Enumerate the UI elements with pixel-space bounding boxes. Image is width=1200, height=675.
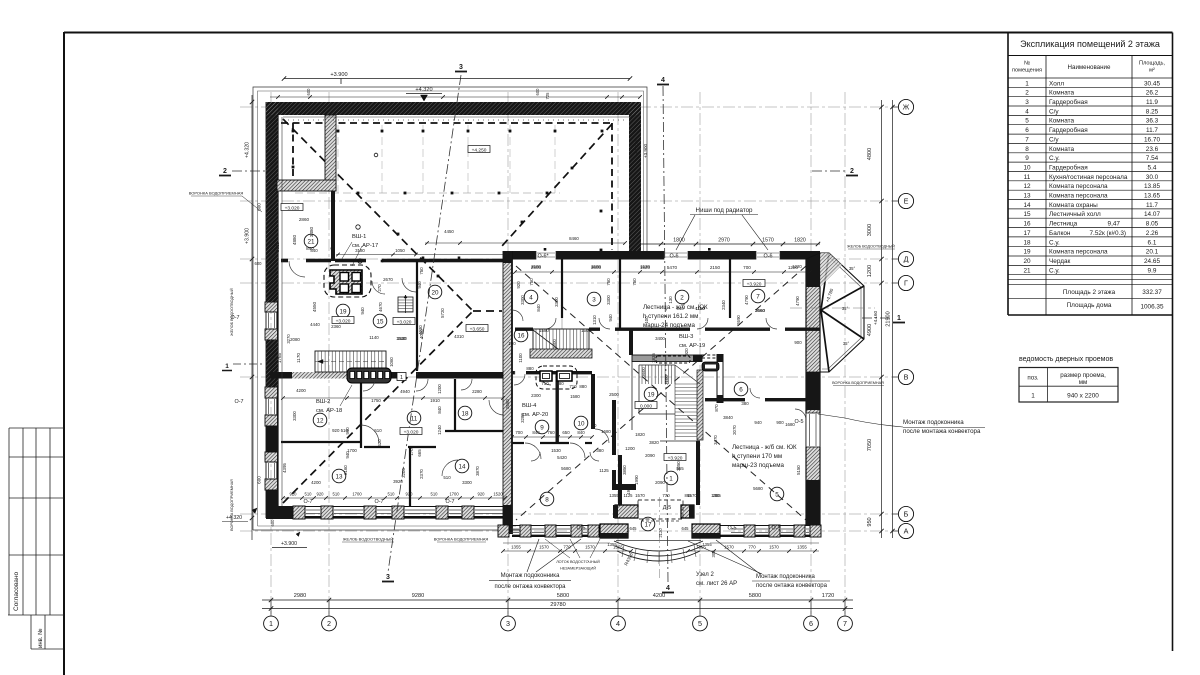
svg-text:7: 7 [1025, 136, 1029, 143]
svg-text:+4.160: +4.160 [873, 310, 878, 325]
svg-text:1220: 1220 [792, 264, 802, 269]
svg-text:35°: 35° [843, 341, 850, 346]
svg-text:+3.900: +3.900 [281, 541, 297, 547]
svg-text:645: 645 [682, 526, 690, 531]
svg-text:С.у.: С.у. [1049, 267, 1060, 274]
svg-text:7: 7 [843, 619, 847, 628]
svg-text:4790: 4790 [744, 295, 749, 305]
svg-text:4200: 4200 [296, 388, 306, 393]
svg-text:ВШ-3: ВШ-3 [679, 334, 693, 340]
svg-text:3: 3 [506, 619, 510, 628]
svg-text:170: 170 [409, 448, 414, 456]
svg-text:30.45: 30.45 [1144, 80, 1160, 87]
svg-text:3470: 3470 [713, 435, 718, 445]
svg-text:1006.35: 1006.35 [1140, 304, 1164, 311]
svg-text:см. АР-18: см. АР-18 [316, 408, 342, 414]
svg-text:помещения: помещения [1012, 68, 1042, 74]
svg-text:О-5: О-5 [728, 526, 737, 532]
svg-text:21900: 21900 [886, 311, 892, 327]
svg-text:Гардеробная: Гардеробная [1049, 164, 1088, 172]
svg-text:920: 920 [478, 492, 486, 497]
svg-text:13: 13 [335, 473, 343, 480]
svg-text:8460: 8460 [569, 236, 579, 241]
svg-text:1050: 1050 [395, 248, 405, 253]
svg-text:770: 770 [662, 493, 670, 498]
svg-text:5420: 5420 [557, 455, 567, 460]
svg-text:3180: 3180 [355, 248, 365, 253]
svg-text:ЖЕЛОБ ВОДООТВОДНЫЙ: ЖЕЛОБ ВОДООТВОДНЫЙ [343, 537, 393, 542]
svg-text:3920: 3920 [393, 479, 403, 484]
svg-text:5: 5 [775, 491, 779, 498]
svg-text:20: 20 [1023, 258, 1031, 265]
svg-text:725: 725 [545, 92, 550, 100]
svg-text:1750: 1750 [371, 398, 381, 403]
svg-text:+4.320: +4.320 [634, 139, 639, 154]
svg-text:Ниши под радиатор: Ниши под радиатор [696, 207, 754, 214]
svg-text:300: 300 [711, 550, 716, 558]
svg-text:20.1: 20.1 [1146, 249, 1159, 256]
svg-text:ВОРОНКА ВОДОПРИЕМНАЯ: ВОРОНКА ВОДОПРИЕМНАЯ [189, 191, 244, 196]
svg-text:5470: 5470 [667, 265, 678, 270]
svg-text:940: 940 [754, 420, 762, 425]
svg-text:1170: 1170 [296, 353, 301, 363]
svg-text:700: 700 [515, 430, 523, 435]
svg-text:Б: Б [904, 510, 909, 519]
svg-text:О-5: О-5 [577, 526, 586, 532]
svg-text:ВОРОНКА ВОДОПРИЕМНАЯ: ВОРОНКА ВОДОПРИЕМНАЯ [230, 479, 234, 531]
svg-text:Е: Е [904, 197, 909, 206]
svg-text:Холл: Холл [1049, 80, 1064, 87]
svg-text:23.6: 23.6 [1146, 146, 1159, 153]
svg-text:2980: 2980 [294, 593, 306, 599]
svg-text:см. АР-20: см. АР-20 [522, 412, 548, 418]
svg-text:2370: 2370 [419, 469, 424, 479]
svg-text:2970: 2970 [718, 238, 730, 244]
svg-text:1240: 1240 [437, 425, 442, 435]
svg-text:270: 270 [377, 284, 382, 292]
svg-text:1: 1 [269, 619, 273, 628]
svg-text:4880: 4880 [292, 234, 297, 245]
svg-text:940: 940 [676, 306, 684, 311]
svg-text:1680: 1680 [601, 429, 611, 434]
svg-text:26.2: 26.2 [1146, 90, 1159, 97]
svg-text:1570: 1570 [762, 238, 774, 244]
svg-text:2070: 2070 [732, 425, 737, 435]
svg-text:Комната персонала: Комната персонала [1049, 193, 1108, 200]
svg-text:4: 4 [616, 619, 620, 628]
svg-text:950: 950 [867, 517, 873, 526]
svg-text:Комната: Комната [1049, 146, 1074, 153]
svg-text:12: 12 [1023, 183, 1031, 190]
svg-text:Согласовано: Согласовано [13, 572, 20, 611]
svg-text:17: 17 [1023, 230, 1031, 237]
svg-text:510: 510 [374, 428, 382, 433]
svg-text:инв. №: инв. № [37, 628, 44, 648]
svg-text:1570: 1570 [635, 493, 645, 498]
svg-text:19: 19 [1023, 249, 1031, 256]
svg-text:510: 510 [305, 492, 313, 497]
svg-text:марш-23 подъема: марш-23 подъема [732, 462, 784, 469]
svg-text:840: 840 [577, 430, 585, 435]
svg-text:5680: 5680 [561, 466, 571, 471]
svg-text:9: 9 [1025, 155, 1029, 162]
svg-text:750: 750 [606, 278, 611, 286]
svg-text:2340: 2340 [721, 300, 726, 310]
svg-text:2690: 2690 [736, 315, 741, 325]
svg-text:940: 940 [417, 281, 422, 289]
svg-text:3400: 3400 [655, 336, 665, 341]
svg-text:20: 20 [431, 289, 439, 296]
svg-text:1530: 1530 [396, 336, 406, 341]
svg-text:+3.020: +3.020 [404, 430, 419, 436]
svg-text:В: В [904, 373, 909, 382]
svg-text:С.у.: С.у. [1049, 155, 1060, 162]
svg-text:3: 3 [459, 64, 463, 71]
svg-text:665: 665 [417, 449, 422, 457]
svg-text:7.54: 7.54 [1146, 155, 1159, 162]
svg-text:332.37: 332.37 [1142, 289, 1162, 296]
svg-text:+3.900: +3.900 [330, 72, 347, 78]
svg-text:1: 1 [897, 315, 901, 322]
svg-text:4: 4 [1025, 108, 1029, 115]
svg-text:600: 600 [270, 519, 275, 527]
svg-text:Гардеробная: Гардеробная [1049, 98, 1088, 106]
svg-text:3205: 3205 [401, 468, 406, 478]
svg-text:Комната: Комната [1049, 118, 1074, 125]
svg-text:Д: Д [904, 255, 909, 264]
svg-text:2150: 2150 [710, 265, 721, 270]
svg-text:О-7: О-7 [375, 499, 384, 505]
svg-text:380: 380 [741, 401, 749, 406]
svg-text:1990: 1990 [634, 475, 639, 485]
svg-text:1700: 1700 [347, 448, 357, 453]
svg-text:3300: 3300 [462, 480, 472, 485]
svg-text:С/у: С/у [1049, 108, 1059, 115]
svg-text:5.4: 5.4 [1148, 165, 1157, 172]
svg-text:2090: 2090 [655, 480, 665, 485]
svg-text:600: 600 [306, 88, 311, 96]
svg-text:Площадь 2 этажа: Площадь 2 этажа [1063, 289, 1116, 296]
svg-text:Экспликация помещений 2 этаж: Экспликация помещений 2 этажа [1020, 39, 1160, 49]
svg-text:710: 710 [569, 384, 577, 389]
svg-text:4: 4 [661, 77, 665, 84]
svg-text:3: 3 [1025, 99, 1029, 106]
svg-text:8.05: 8.05 [1146, 221, 1159, 228]
svg-text:+3.920: +3.920 [668, 456, 683, 462]
svg-text:1140: 1140 [369, 335, 379, 340]
svg-text:940: 940 [360, 307, 365, 315]
svg-text:1820: 1820 [794, 238, 806, 244]
svg-text:100: 100 [508, 341, 516, 346]
svg-text:+4.320: +4.320 [226, 515, 242, 521]
svg-text:3600: 3600 [591, 264, 601, 269]
svg-text:мм: мм [1079, 379, 1088, 386]
svg-text:4670: 4670 [378, 302, 383, 312]
svg-text:1: 1 [1031, 393, 1035, 400]
svg-text:1530: 1530 [551, 448, 561, 453]
svg-text:16: 16 [517, 332, 525, 339]
svg-text:Лестница: Лестница [1049, 221, 1078, 228]
svg-text:после онтажа конвектора: после онтажа конвектора [495, 584, 567, 590]
svg-text:2: 2 [327, 619, 331, 628]
svg-text:3600: 3600 [641, 367, 646, 377]
svg-text:510: 510 [443, 475, 451, 480]
svg-text:940: 940 [608, 314, 613, 322]
svg-text:3660: 3660 [755, 308, 765, 313]
svg-text:11.7: 11.7 [1146, 127, 1158, 134]
svg-text:5615: 5615 [275, 241, 280, 252]
svg-text:645: 645 [630, 526, 638, 531]
svg-text:17: 17 [644, 521, 652, 528]
svg-text:h ступени 170 мм: h ступени 170 мм [732, 453, 782, 460]
svg-text:Лестница - ж/б см. ЮК: Лестница - ж/б см. ЮК [732, 444, 797, 451]
svg-text:3850: 3850 [622, 465, 627, 475]
svg-text:3840: 3840 [723, 415, 733, 420]
svg-text:+3.020: +3.020 [285, 206, 300, 212]
svg-text:размер проема,: размер проема, [1060, 372, 1106, 379]
svg-text:Площадь,: Площадь, [1139, 61, 1165, 67]
svg-text:19: 19 [339, 308, 347, 315]
svg-text:600: 600 [255, 261, 263, 266]
svg-text:ведомость дверных проемов: ведомость дверных проемов [1019, 356, 1113, 363]
svg-text:1580: 1580 [539, 328, 549, 333]
svg-text:770: 770 [748, 545, 756, 550]
svg-text:2090: 2090 [645, 453, 655, 458]
svg-text:940 x 2200: 940 x 2200 [1067, 393, 1099, 400]
svg-text:750: 750 [529, 278, 534, 286]
svg-text:510: 510 [333, 492, 341, 497]
svg-text:8: 8 [1025, 146, 1029, 153]
svg-text:см. АР-19: см. АР-19 [679, 343, 705, 349]
svg-text:510: 510 [431, 492, 439, 497]
svg-text:15: 15 [1023, 211, 1031, 218]
svg-text:2: 2 [223, 168, 227, 175]
svg-text:21: 21 [1023, 267, 1031, 274]
svg-text:4: 4 [529, 294, 533, 301]
svg-text:2350: 2350 [696, 448, 701, 458]
svg-text:+3.020: +3.020 [397, 320, 412, 326]
svg-text:2: 2 [1025, 90, 1029, 97]
svg-text:О-7: О-7 [446, 499, 455, 505]
svg-text:9.9: 9.9 [1148, 267, 1157, 274]
svg-text:4395: 4395 [282, 463, 287, 473]
svg-text:ВШ-1: ВШ-1 [352, 234, 366, 240]
svg-text:1300: 1300 [552, 339, 557, 349]
svg-text:510: 510 [388, 492, 396, 497]
svg-text:9,47: 9,47 [1108, 221, 1121, 228]
svg-text:13.65: 13.65 [1144, 193, 1160, 200]
svg-text:ВОРОНКА ВОДОПРИЕМНАЯ: ВОРОНКА ВОДОПРИЕМНАЯ [832, 381, 884, 385]
svg-text:3300: 3300 [554, 297, 559, 307]
svg-text:О-7: О-7 [304, 499, 313, 505]
svg-text:3300: 3300 [292, 411, 297, 421]
svg-text:13.85: 13.85 [1144, 183, 1160, 190]
svg-text:1125: 1125 [599, 468, 609, 473]
svg-text:3: 3 [386, 574, 390, 581]
svg-text:880: 880 [579, 384, 587, 389]
svg-text:90: 90 [592, 423, 597, 428]
svg-text:1680: 1680 [785, 422, 795, 427]
svg-text:2120: 2120 [658, 528, 663, 538]
svg-text:10: 10 [577, 420, 585, 427]
svg-text:поз.: поз. [1027, 375, 1039, 382]
svg-text:Кухня/гостиная персонала: Кухня/гостиная персонала [1049, 174, 1128, 181]
svg-text:865: 865 [685, 493, 693, 498]
svg-text:1: 1 [669, 475, 673, 482]
svg-text:марш-24 подъема: марш-24 подъема [643, 322, 695, 329]
svg-text:6: 6 [1025, 127, 1029, 134]
svg-text:260: 260 [713, 493, 721, 498]
svg-text:1570: 1570 [539, 545, 549, 550]
svg-text:Комната персонала: Комната персонала [1049, 183, 1108, 190]
svg-text:1835: 1835 [651, 353, 656, 363]
svg-text:Комната охраны: Комната охраны [1049, 202, 1098, 209]
svg-text:А: А [904, 527, 909, 536]
svg-text:920: 920 [684, 348, 689, 356]
svg-text:600: 600 [535, 88, 540, 96]
svg-text:+4.250: +4.250 [472, 148, 487, 154]
svg-text:700: 700 [743, 265, 751, 270]
svg-text:6.1: 6.1 [1148, 239, 1157, 246]
svg-text:24.65: 24.65 [1144, 258, 1160, 265]
svg-text:420: 420 [377, 439, 382, 447]
svg-text:2860: 2860 [299, 217, 310, 222]
svg-text:1820: 1820 [635, 432, 645, 437]
svg-text:4790: 4790 [795, 296, 800, 306]
svg-text:2080: 2080 [290, 337, 300, 342]
svg-text:3280: 3280 [520, 413, 525, 423]
svg-text:3820: 3820 [649, 440, 659, 445]
svg-text:1310: 1310 [592, 315, 597, 325]
svg-text:+3.900: +3.900 [245, 228, 251, 244]
svg-text:Монтаж подоконника: Монтаж подоконника [903, 419, 964, 426]
svg-text:16: 16 [1023, 221, 1031, 228]
svg-text:Площадь дома: Площадь дома [1067, 302, 1112, 309]
svg-text:600: 600 [257, 476, 262, 484]
svg-text:1: 1 [1025, 80, 1029, 87]
svg-text:1110: 1110 [695, 306, 705, 311]
svg-text:О-7: О-7 [235, 399, 244, 405]
svg-text:2280: 2280 [472, 389, 482, 394]
svg-text:36.3: 36.3 [1146, 118, 1159, 125]
svg-text:13: 13 [1023, 193, 1031, 200]
svg-text:Узел 2: Узел 2 [696, 572, 714, 578]
svg-text:1100: 1100 [518, 353, 523, 363]
svg-text:Г: Г [904, 279, 908, 288]
svg-text:1355: 1355 [702, 542, 712, 547]
svg-text:С/у: С/у [1049, 136, 1059, 143]
svg-text:12: 12 [316, 417, 324, 424]
svg-text:2500: 2500 [531, 264, 541, 269]
svg-text:710: 710 [541, 381, 549, 386]
svg-text:920: 920 [406, 492, 414, 497]
svg-text:21: 21 [307, 238, 315, 245]
svg-text:920: 920 [516, 281, 521, 289]
svg-text:О-7: О-7 [231, 315, 240, 321]
svg-text:4310: 4310 [454, 334, 464, 339]
svg-text:3300: 3300 [606, 295, 611, 305]
svg-text:840: 840 [532, 430, 540, 435]
svg-text:НЕЗАМЕРЗАЮЩИЙ: НЕЗАМЕРЗАЮЩИЙ [560, 567, 596, 571]
svg-text:4440: 4440 [310, 322, 320, 327]
svg-text:900: 900 [776, 420, 784, 425]
svg-text:8.25: 8.25 [1146, 108, 1159, 115]
svg-text:Д-5: Д-5 [663, 505, 671, 511]
svg-text:35°: 35° [849, 266, 856, 271]
svg-text:18: 18 [461, 410, 469, 417]
svg-text:Монтаж подоконника: Монтаж подоконника [501, 573, 560, 579]
svg-text:3: 3 [592, 296, 596, 303]
svg-text:4030: 4030 [418, 325, 423, 335]
svg-text:1200: 1200 [437, 384, 442, 394]
svg-text:3870: 3870 [475, 466, 480, 476]
svg-text:5680: 5680 [753, 486, 763, 491]
svg-text:14: 14 [1023, 202, 1031, 209]
svg-text:5720: 5720 [440, 308, 445, 318]
svg-text:+4.320: +4.320 [415, 87, 432, 93]
svg-text:760: 760 [547, 430, 555, 435]
svg-text:11.9: 11.9 [1146, 99, 1158, 106]
svg-text:Лестничный холл: Лестничный холл [1049, 210, 1101, 218]
svg-text:5800: 5800 [749, 593, 761, 599]
svg-text:+3.900: +3.900 [643, 143, 648, 158]
svg-text:840: 840 [536, 304, 541, 312]
svg-text:2050: 2050 [676, 461, 681, 471]
svg-text:Комната: Комната [1049, 90, 1074, 97]
svg-text:11: 11 [411, 415, 418, 422]
svg-text:8: 8 [545, 496, 549, 503]
svg-text:№: № [1024, 61, 1030, 67]
svg-text:2680: 2680 [505, 399, 510, 409]
svg-text:7: 7 [756, 293, 760, 300]
svg-text:4900: 4900 [867, 324, 873, 336]
svg-text:2100: 2100 [664, 375, 669, 385]
svg-text:2160: 2160 [343, 465, 348, 475]
svg-text:5150: 5150 [796, 465, 801, 475]
svg-text:Ж: Ж [903, 103, 910, 112]
svg-text:18: 18 [1023, 239, 1031, 246]
svg-text:Комната персонала: Комната персонала [1049, 249, 1108, 256]
svg-text:1700: 1700 [352, 492, 362, 497]
svg-text:О-6: О-6 [764, 254, 773, 260]
svg-text:2670: 2670 [383, 277, 393, 282]
svg-text:+4.320: +4.320 [245, 142, 251, 158]
svg-text:+3.920: +3.920 [747, 282, 762, 288]
svg-text:880: 880 [556, 381, 564, 386]
svg-text:14.07: 14.07 [1144, 211, 1160, 218]
svg-text:после онтажа конвектора: после онтажа конвектора [756, 583, 828, 589]
svg-text:1580: 1580 [570, 394, 580, 399]
svg-text:14: 14 [458, 463, 466, 470]
svg-text:2360: 2360 [331, 324, 341, 329]
svg-text:10: 10 [1023, 165, 1031, 172]
svg-text:1570: 1570 [585, 545, 595, 550]
svg-text:4: 4 [666, 585, 670, 592]
svg-text:1990: 1990 [626, 485, 631, 495]
svg-text:4450: 4450 [444, 229, 454, 234]
svg-text:2300: 2300 [531, 393, 541, 398]
svg-text:130: 130 [668, 296, 673, 304]
svg-text:4940: 4940 [400, 389, 410, 394]
svg-text:Балкон: Балкон [1049, 230, 1071, 237]
svg-text:1910: 1910 [430, 398, 440, 403]
svg-text:30.0: 30.0 [1146, 174, 1159, 181]
svg-text:100: 100 [644, 316, 649, 324]
svg-text:840: 840 [310, 248, 318, 253]
svg-text:см. лист 26 АР: см. лист 26 АР [696, 581, 737, 587]
svg-text:ВОРОНКА ВОДОПРИЕМНАЯ: ВОРОНКА ВОДОПРИЕМНАЯ [434, 537, 489, 542]
svg-text:1355: 1355 [609, 493, 619, 498]
